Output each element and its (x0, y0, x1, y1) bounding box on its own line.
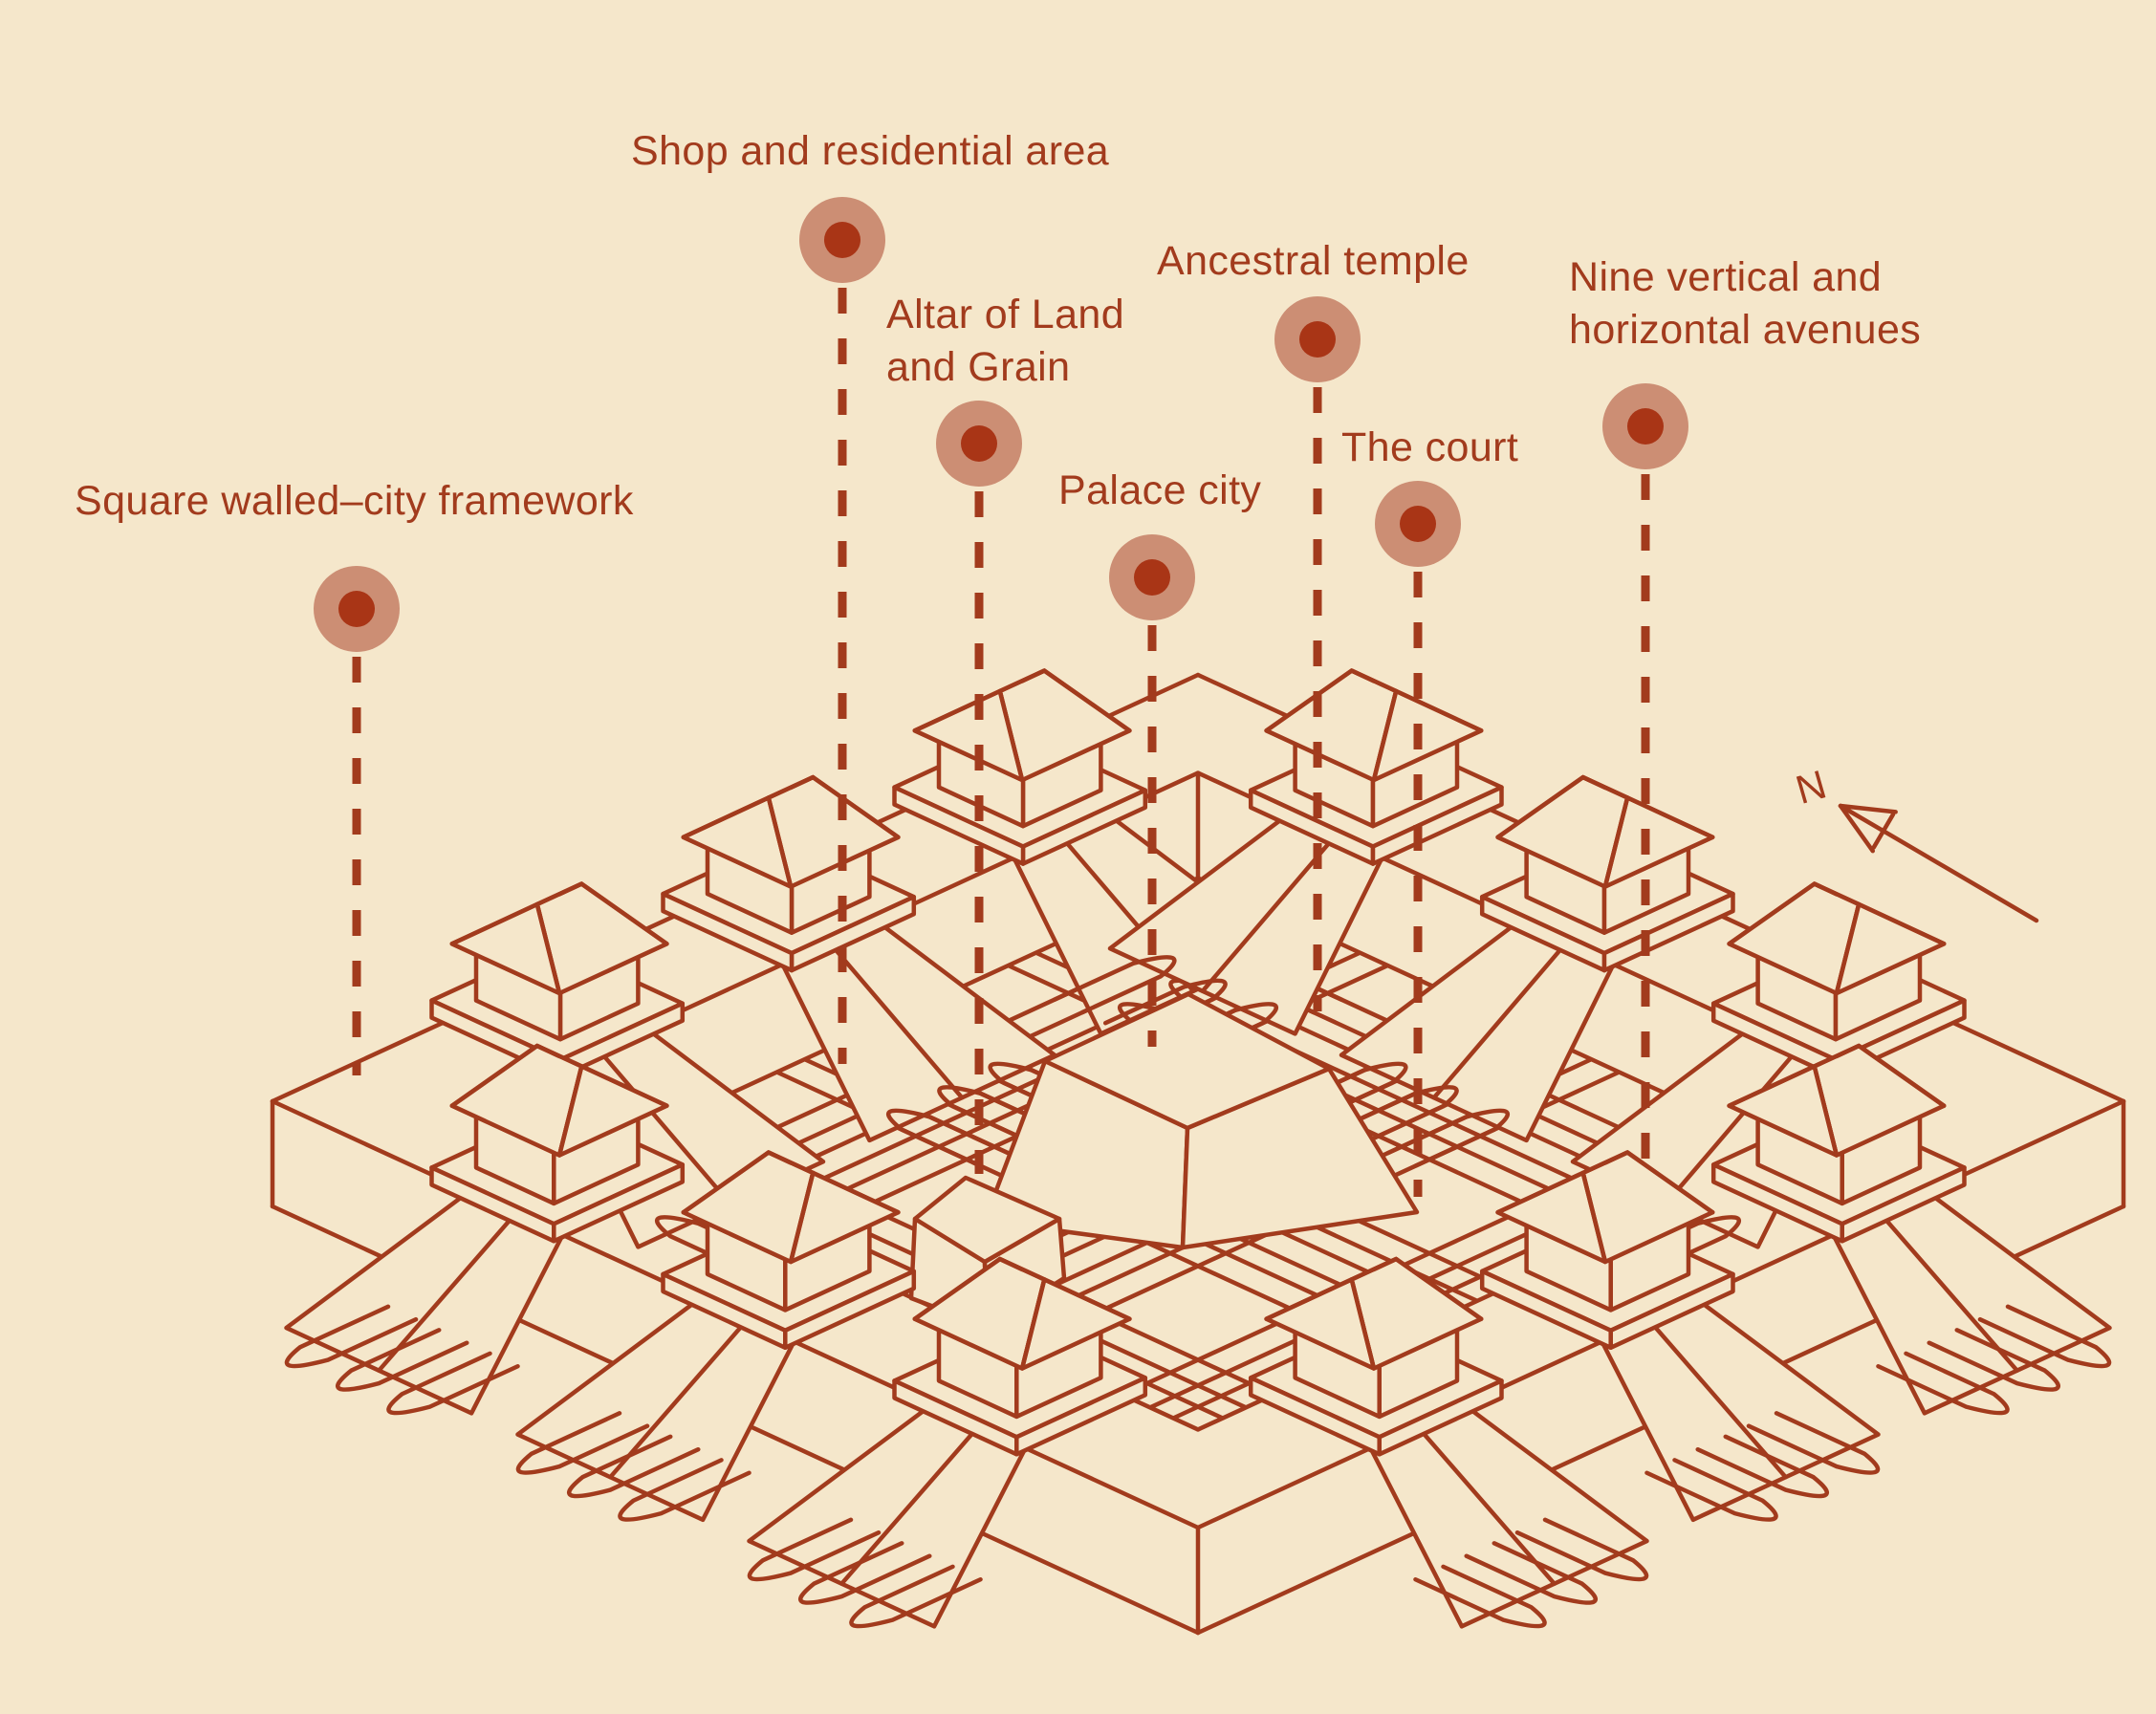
marker-dot (961, 425, 997, 462)
marker-dot (824, 222, 860, 258)
nine-vertical-and-horizontal-avenues-label: horizontal avenues (1569, 307, 1921, 353)
marker-dot (338, 591, 375, 627)
marker-dot (1134, 559, 1170, 596)
isometric-city-drawing: Square walled–city frameworkShop and res… (0, 0, 2156, 1714)
square-walled-city-framework-label: Square walled–city framework (75, 478, 634, 524)
altar-of-land-and-grain-label: and Grain (886, 344, 1070, 390)
altar-of-land-and-grain-label: Altar of Land (886, 292, 1124, 337)
shop-and-residential-area-label: Shop and residential area (631, 128, 1109, 174)
marker-dot (1400, 506, 1436, 542)
palace-city-label: Palace city (1058, 467, 1261, 513)
the-court-label: The court (1341, 424, 1518, 470)
nine-vertical-and-horizontal-avenues-label: Nine vertical and (1569, 254, 1882, 300)
ancestral-temple-label: Ancestral temple (1157, 238, 1470, 284)
city-plan-diagram: Square walled–city frameworkShop and res… (0, 0, 2156, 1714)
marker-dot (1627, 408, 1664, 445)
marker-dot (1299, 321, 1336, 358)
